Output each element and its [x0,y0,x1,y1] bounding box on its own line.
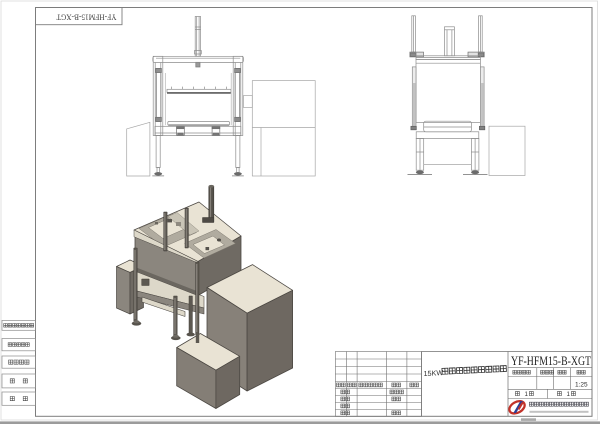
svg-text:1: 1 [525,391,529,398]
svg-text:1: 1 [567,391,571,398]
svg-text:1:25: 1:25 [575,381,588,388]
svg-text:YF-HFM15-B-XGT: YF-HFM15-B-XGT [511,354,591,368]
svg-text:YF-HFM15-B-XGT: YF-HFM15-B-XGT [57,13,117,22]
svg-text:15KW: 15KW [423,368,443,378]
